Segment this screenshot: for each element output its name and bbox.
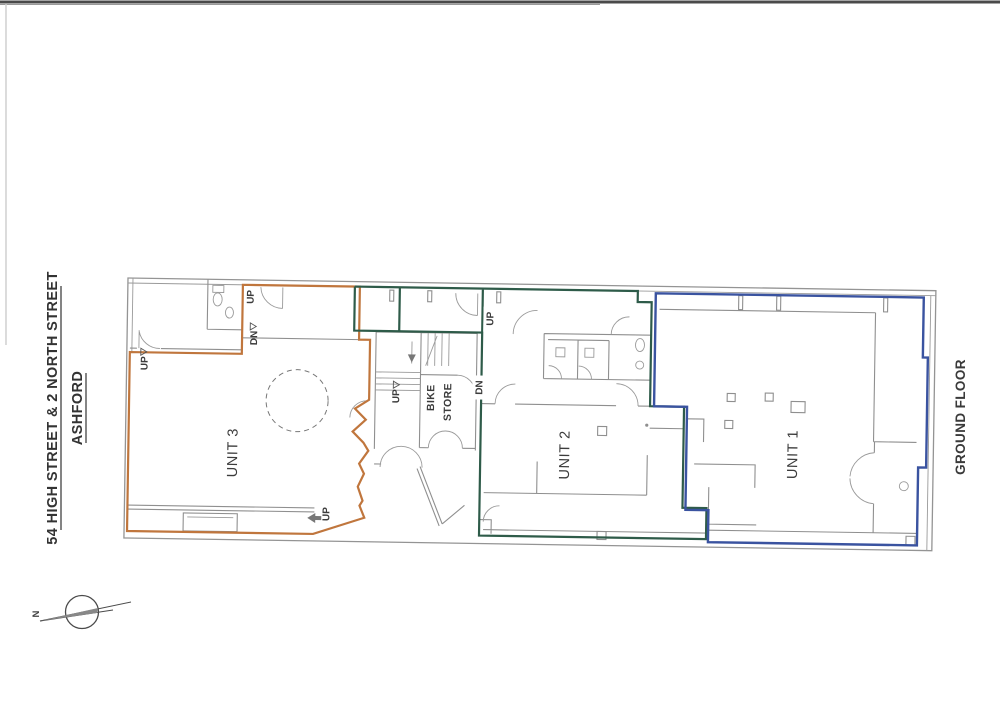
building-outer-walls bbox=[124, 278, 936, 551]
wc-pan bbox=[213, 293, 222, 306]
unit3-shopfront bbox=[127, 505, 314, 512]
column bbox=[765, 393, 773, 401]
outer-wall-inner-left bbox=[132, 278, 133, 352]
wc-cubicle-doors bbox=[548, 366, 591, 380]
wc-cistern bbox=[213, 285, 224, 292]
wall-pier bbox=[777, 296, 781, 310]
unit1-double-door bbox=[850, 452, 875, 503]
bike-store-label-line1: BIKE bbox=[425, 384, 437, 411]
stair-treads-lower bbox=[375, 372, 420, 391]
wc-symbol bbox=[556, 348, 565, 357]
plan-labels: UNIT 3 UNIT 2 UNIT 1 BIKE STORE UP DN UP… bbox=[137, 288, 804, 531]
up-arrow-marker bbox=[393, 381, 399, 388]
floor-plan: UNIT 3 UNIT 2 UNIT 1 BIKE STORE UP DN UP… bbox=[124, 278, 936, 551]
shopfront-step bbox=[183, 513, 237, 532]
bike-store-double-door bbox=[428, 431, 462, 449]
up-entry-arrow bbox=[307, 513, 321, 523]
north-label: N bbox=[31, 610, 42, 617]
bike-store-label-line2: STORE bbox=[442, 383, 455, 421]
label-dn-stairs: DN bbox=[474, 380, 485, 395]
unit2-inner-walls bbox=[479, 426, 708, 538]
floor-label: GROUND FLOOR bbox=[953, 359, 968, 475]
dn-arrow-marker bbox=[250, 323, 256, 330]
column-dot bbox=[645, 424, 648, 427]
door-arcs bbox=[136, 285, 877, 528]
unit-3-label: UNIT 3 bbox=[225, 428, 242, 478]
scanned-plan-page: UNIT 3 UNIT 2 UNIT 1 BIKE STORE UP DN UP… bbox=[0, 0, 1000, 706]
lobby-splay-walls bbox=[373, 464, 465, 526]
unit3-top-room-door bbox=[261, 287, 283, 308]
north-arrow: N bbox=[31, 596, 131, 629]
unit1-corner-pier bbox=[906, 536, 915, 545]
floor-label-group: GROUND FLOOR bbox=[953, 359, 968, 475]
rear-corridor-door bbox=[455, 293, 477, 315]
wall-pier bbox=[884, 298, 888, 312]
column bbox=[727, 393, 735, 401]
stair-direction-arrow bbox=[408, 354, 416, 362]
wall-pier bbox=[739, 296, 743, 310]
label-up-left: UP bbox=[140, 356, 151, 370]
wall-pier bbox=[390, 290, 394, 301]
unit-3-boundary bbox=[127, 283, 371, 535]
wc-pan bbox=[635, 338, 644, 351]
unit-2-label: UNIT 2 bbox=[557, 430, 574, 480]
town-title: ASHFORD bbox=[70, 371, 86, 446]
lobby-double-door bbox=[380, 446, 422, 468]
unit1-column-round bbox=[899, 482, 908, 491]
shopfront-step-inner bbox=[187, 517, 233, 518]
column-large bbox=[791, 401, 805, 412]
label-up-entry: UP bbox=[321, 507, 332, 521]
wc-symbol bbox=[585, 348, 594, 357]
unit2-corridor-wall bbox=[481, 404, 650, 407]
columns bbox=[598, 390, 806, 438]
floor-plan-canvas: UNIT 3 UNIT 2 UNIT 1 BIKE STORE UP DN UP… bbox=[0, 0, 1000, 706]
stair-break-line bbox=[426, 336, 437, 366]
unit1-inner-walls bbox=[656, 309, 920, 533]
rear-room-door bbox=[139, 330, 160, 348]
label-up-stairs: UP bbox=[391, 389, 402, 403]
unit-1-label: UNIT 1 bbox=[785, 430, 802, 480]
interior-walls bbox=[127, 278, 921, 545]
label-up-unit2: UP bbox=[485, 311, 496, 325]
stair-treads-upper bbox=[428, 333, 450, 366]
unit2-corridor-doors bbox=[495, 382, 638, 406]
dashed-turning-circle bbox=[266, 369, 329, 432]
stairs bbox=[375, 332, 449, 391]
basin bbox=[225, 307, 233, 318]
scan-edges bbox=[0, 2, 1000, 345]
address-title: 54 HIGH STREET & 2 NORTH STREET bbox=[45, 271, 61, 544]
unit2-wc-lobby-door bbox=[611, 317, 629, 335]
unit2-rear-door bbox=[513, 310, 537, 334]
label-up-rear: UP bbox=[246, 290, 257, 304]
basin bbox=[636, 361, 644, 369]
column bbox=[598, 426, 607, 435]
unit-2-boundary-rear-room bbox=[354, 287, 483, 333]
unit1-door-jambs bbox=[873, 442, 874, 533]
wall-pier bbox=[428, 291, 432, 302]
title-block: 54 HIGH STREET & 2 NORTH STREET ASHFORD bbox=[45, 271, 86, 544]
outer-wall-outline bbox=[124, 278, 936, 551]
label-dn-rear: DN bbox=[249, 331, 260, 346]
column bbox=[725, 420, 733, 428]
wall-pier bbox=[497, 292, 501, 303]
